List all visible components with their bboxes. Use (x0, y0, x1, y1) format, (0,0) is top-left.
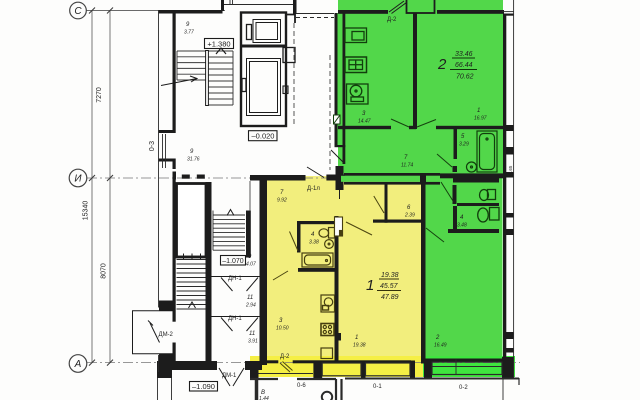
svg-text:+1.380: +1.380 (207, 40, 230, 49)
svg-text:7270: 7270 (96, 87, 103, 103)
svg-text:45.57: 45.57 (380, 283, 399, 290)
svg-text:4.07: 4.07 (246, 262, 256, 268)
svg-text:ДМ-2: ДМ-2 (159, 332, 174, 338)
svg-text:3.29: 3.29 (459, 142, 469, 148)
svg-text:33.46: 33.46 (455, 51, 473, 58)
svg-text:16.49: 16.49 (434, 343, 447, 349)
svg-text:Д-2: Д-2 (280, 354, 290, 360)
svg-text:3.91: 3.91 (248, 339, 258, 345)
svg-text:19.38: 19.38 (353, 343, 366, 349)
svg-text:Д-2: Д-2 (387, 17, 397, 23)
svg-text:8070: 8070 (101, 263, 108, 279)
svg-text:11: 11 (247, 295, 253, 301)
svg-text:10.50: 10.50 (276, 326, 289, 332)
svg-text:1: 1 (355, 335, 358, 341)
svg-text:11: 11 (249, 331, 255, 337)
svg-text:19.38: 19.38 (381, 272, 399, 279)
svg-text:2: 2 (437, 56, 447, 73)
svg-text:И: И (74, 174, 82, 185)
svg-text:70.62: 70.62 (456, 74, 474, 81)
svg-text:3.38: 3.38 (309, 240, 319, 246)
svg-text:ДН-1: ДН-1 (228, 276, 242, 282)
svg-text:31.76: 31.76 (187, 157, 200, 163)
svg-text:11.74: 11.74 (401, 163, 413, 169)
svg-text:15340: 15340 (83, 201, 90, 221)
svg-text:14.47: 14.47 (358, 119, 371, 125)
svg-text:1.44: 1.44 (259, 396, 269, 400)
svg-text:16.97: 16.97 (474, 116, 487, 122)
svg-text:9.92: 9.92 (277, 198, 287, 204)
svg-text:–0.020: –0.020 (252, 132, 275, 141)
svg-text:66.44: 66.44 (455, 62, 473, 69)
svg-text:2: 2 (435, 335, 440, 341)
svg-text:А: А (74, 359, 82, 370)
svg-text:2.94: 2.94 (245, 303, 256, 309)
svg-text:Д-1л: Д-1л (307, 186, 320, 192)
svg-text:ДМ-1: ДМ-1 (222, 373, 237, 379)
svg-text:1: 1 (366, 277, 374, 294)
svg-text:0-2: 0-2 (459, 385, 468, 391)
svg-text:0-6: 0-6 (297, 383, 306, 389)
svg-text:47.89: 47.89 (381, 294, 399, 301)
svg-text:0-1: 0-1 (373, 384, 382, 390)
svg-text:ДН-1: ДН-1 (228, 316, 242, 322)
svg-text:2.39: 2.39 (404, 213, 415, 219)
svg-text:С: С (74, 6, 82, 17)
svg-text:0-3: 0-3 (149, 141, 156, 151)
svg-text:3.48: 3.48 (457, 223, 467, 229)
svg-text:1: 1 (477, 108, 480, 114)
svg-text:–1.070: –1.070 (222, 258, 244, 265)
svg-text:–1.090: –1.090 (192, 382, 215, 391)
svg-text:3.77: 3.77 (184, 30, 194, 36)
